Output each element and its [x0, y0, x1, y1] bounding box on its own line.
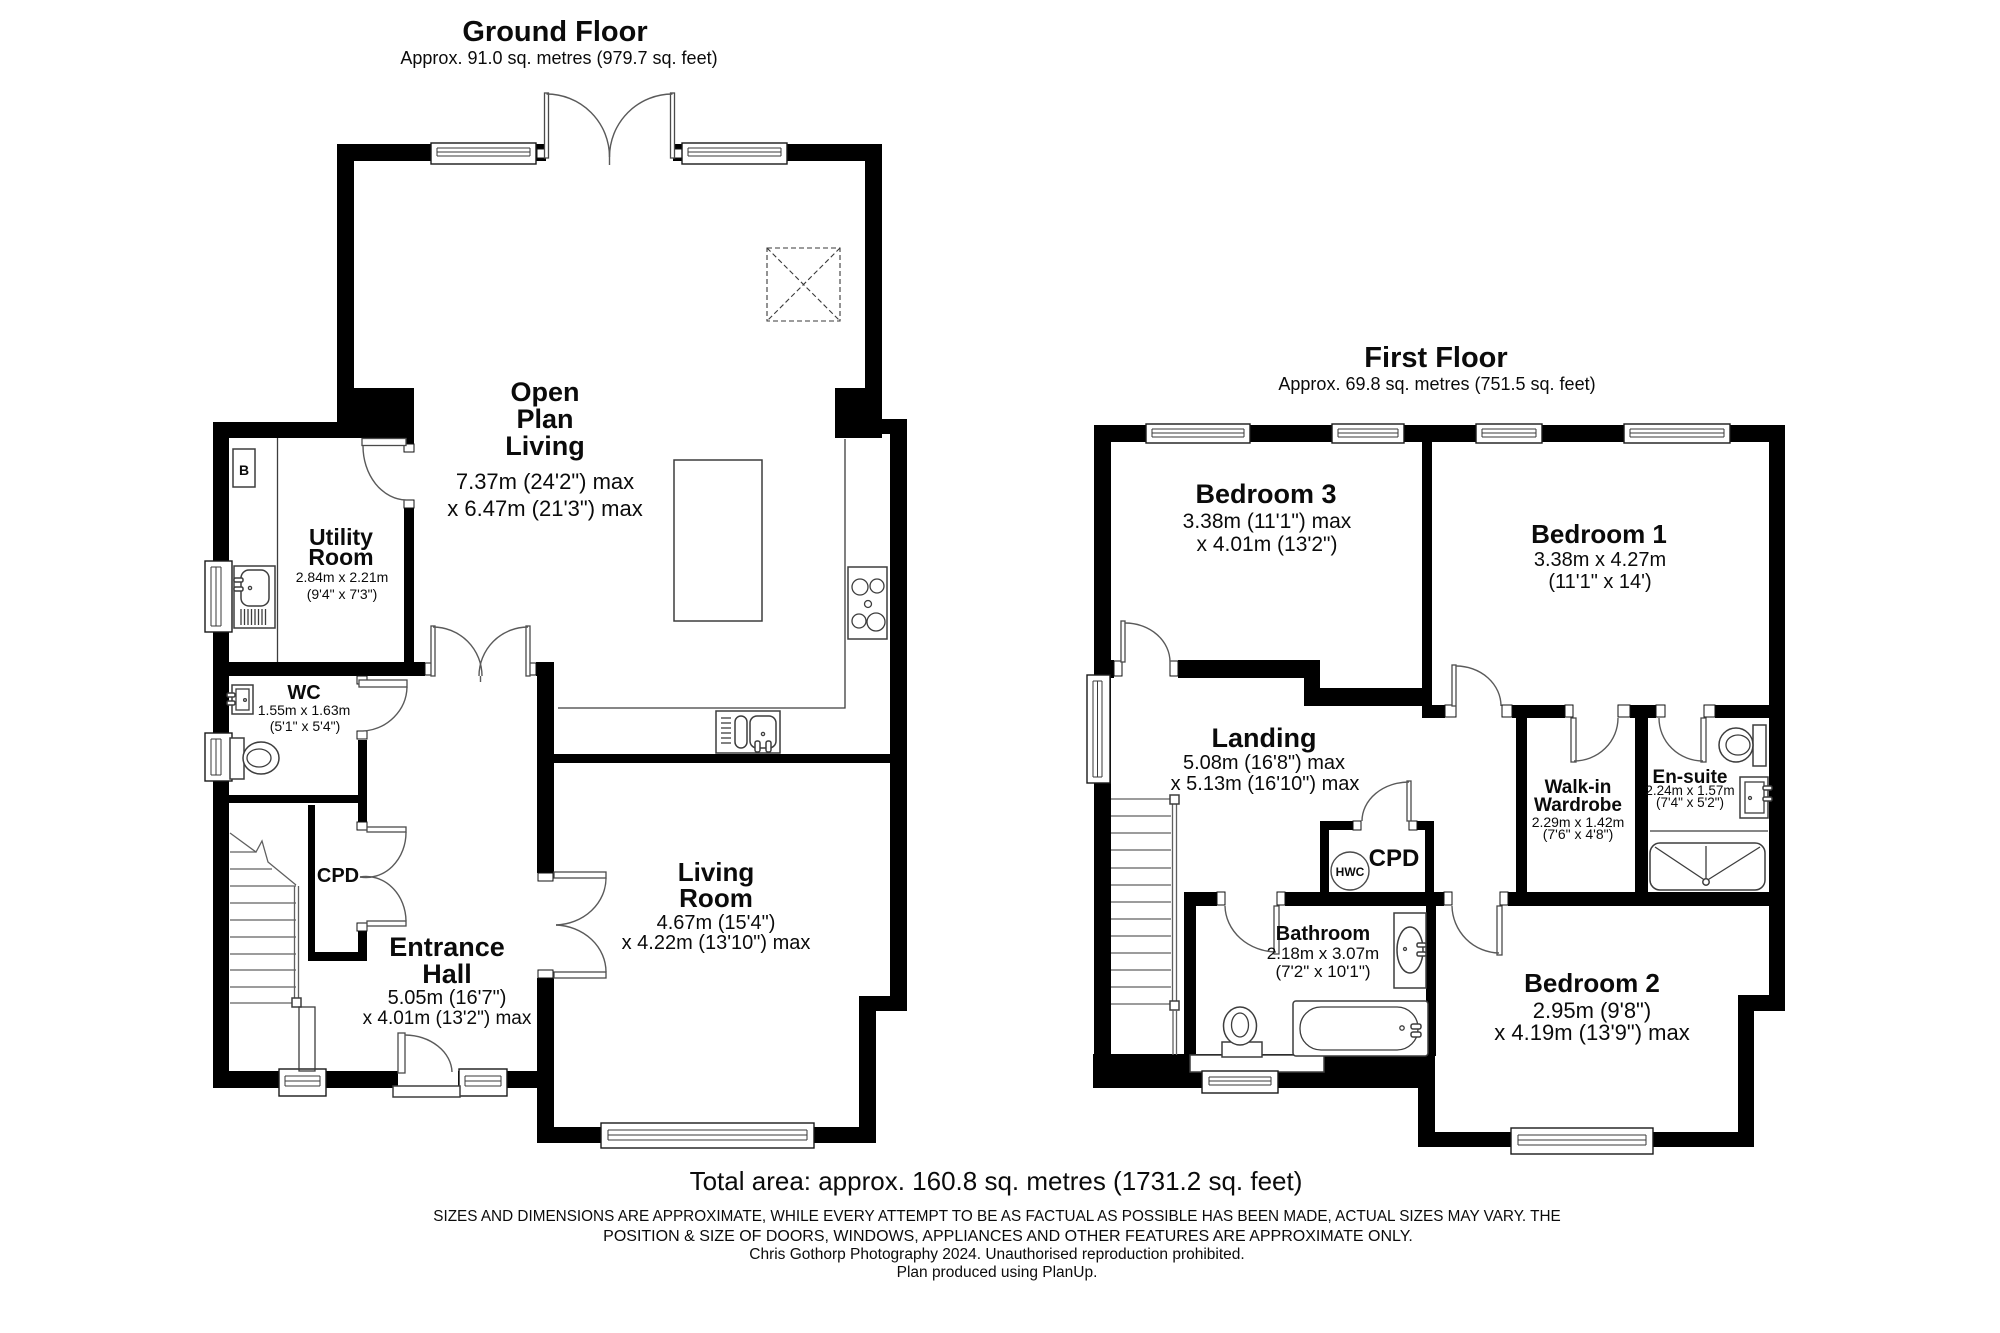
svg-text:HWC: HWC: [1336, 865, 1365, 879]
svg-text:Bathroom: Bathroom: [1276, 923, 1370, 945]
svg-text:(11'1" x 14'): (11'1" x 14'): [1548, 571, 1651, 593]
svg-text:Wardrobe: Wardrobe: [1534, 795, 1622, 816]
svg-text:Open: Open: [510, 377, 579, 407]
svg-text:Living: Living: [505, 431, 585, 461]
svg-text:Bedroom 3: Bedroom 3: [1195, 479, 1336, 509]
svg-text:(7'6" x 4'8"): (7'6" x 4'8"): [1543, 826, 1614, 842]
svg-text:Room: Room: [308, 544, 373, 570]
svg-text:(7'2" x 10'1"): (7'2" x 10'1"): [1275, 962, 1370, 981]
svg-text:Room: Room: [679, 883, 753, 913]
svg-text:Hall: Hall: [422, 959, 472, 989]
svg-text:4.67m (15'4"): 4.67m (15'4"): [657, 912, 776, 934]
svg-text:Chris Gothorp Photography 2024: Chris Gothorp Photography 2024. Unauthor…: [749, 1246, 1244, 1263]
svg-text:B: B: [239, 462, 249, 478]
svg-text:Entrance: Entrance: [389, 932, 505, 962]
svg-text:Plan produced using PlanUp.: Plan produced using PlanUp.: [897, 1264, 1098, 1281]
svg-text:Bedroom 2: Bedroom 2: [1524, 968, 1660, 998]
svg-text:Total area: approx. 160.8 sq.: Total area: approx. 160.8 sq. metres (17…: [690, 1166, 1303, 1196]
svg-text:POSITION & SIZE OF DOORS, WIND: POSITION & SIZE OF DOORS, WINDOWS, APPLI…: [603, 1228, 1413, 1245]
svg-text:CPD: CPD: [317, 865, 359, 887]
svg-text:3.38m x 4.27m: 3.38m x 4.27m: [1534, 549, 1666, 571]
svg-text:x 5.13m (16'10") max: x 5.13m (16'10") max: [1171, 773, 1360, 795]
svg-text:x 4.19m (13'9") max: x 4.19m (13'9") max: [1494, 1020, 1689, 1045]
svg-text:x 4.01m (13'2") max: x 4.01m (13'2") max: [363, 1008, 532, 1029]
svg-text:Landing: Landing: [1212, 723, 1317, 753]
svg-text:CPD: CPD: [1369, 845, 1420, 872]
svg-text:7.37m (24'2") max: 7.37m (24'2") max: [456, 469, 634, 494]
svg-text:1.55m x 1.63m: 1.55m x 1.63m: [258, 702, 351, 718]
svg-text:Ground Floor: Ground Floor: [462, 16, 647, 48]
svg-text:x 6.47m (21'3") max: x 6.47m (21'3") max: [447, 496, 642, 521]
svg-text:Approx. 91.0 sq. metres (979.7: Approx. 91.0 sq. metres (979.7 sq. feet): [400, 48, 717, 68]
svg-text:5.08m (16'8") max: 5.08m (16'8") max: [1183, 752, 1345, 774]
svg-text:Bedroom 1: Bedroom 1: [1531, 519, 1667, 549]
svg-text:(5'1" x 5'4"): (5'1" x 5'4"): [270, 718, 341, 734]
svg-text:5.05m (16'7"): 5.05m (16'7"): [388, 987, 507, 1009]
svg-text:First Floor: First Floor: [1364, 342, 1507, 374]
svg-text:(7'4" x 5'2"): (7'4" x 5'2"): [1656, 795, 1724, 810]
svg-text:2.84m x 2.21m: 2.84m x 2.21m: [296, 569, 389, 585]
svg-text:x 4.22m (13'10") max: x 4.22m (13'10") max: [622, 932, 811, 954]
svg-text:Plan: Plan: [516, 404, 573, 434]
svg-text:Approx. 69.8 sq. metres (751.5: Approx. 69.8 sq. metres (751.5 sq. feet): [1278, 374, 1595, 394]
svg-text:(9'4" x 7'3"): (9'4" x 7'3"): [307, 586, 378, 602]
svg-text:WC: WC: [287, 682, 320, 704]
svg-text:3.38m (11'1") max: 3.38m (11'1") max: [1183, 510, 1352, 533]
svg-text:2.18m x 3.07m: 2.18m x 3.07m: [1267, 944, 1379, 963]
svg-text:x 4.01m (13'2"): x 4.01m (13'2"): [1196, 533, 1337, 556]
svg-text:SIZES AND DIMENSIONS ARE APPRO: SIZES AND DIMENSIONS ARE APPROXIMATE, WH…: [433, 1208, 1561, 1225]
